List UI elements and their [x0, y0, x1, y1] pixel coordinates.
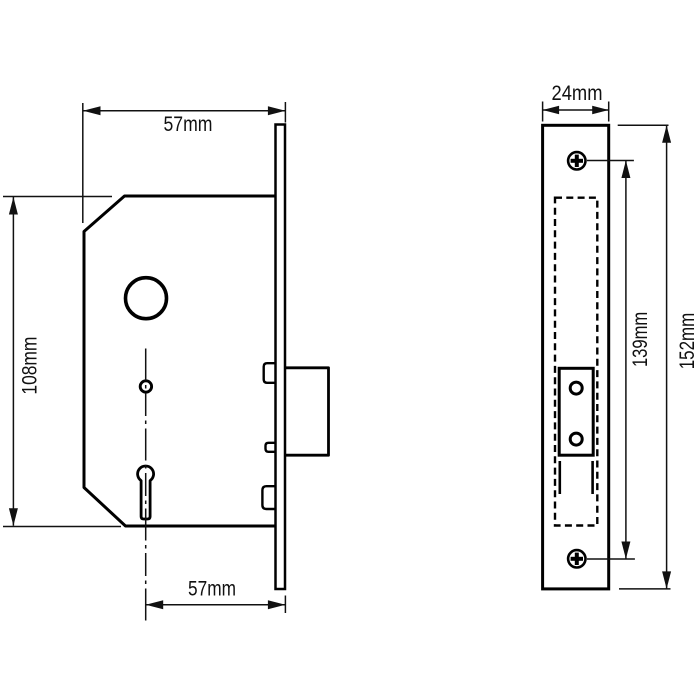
svg-text:57mm: 57mm: [188, 578, 236, 601]
svg-text:57mm: 57mm: [164, 113, 213, 136]
svg-text:24mm: 24mm: [552, 82, 603, 105]
svg-text:139mm: 139mm: [629, 312, 652, 367]
svg-text:108mm: 108mm: [19, 337, 42, 395]
svg-text:152mm: 152mm: [676, 313, 699, 370]
